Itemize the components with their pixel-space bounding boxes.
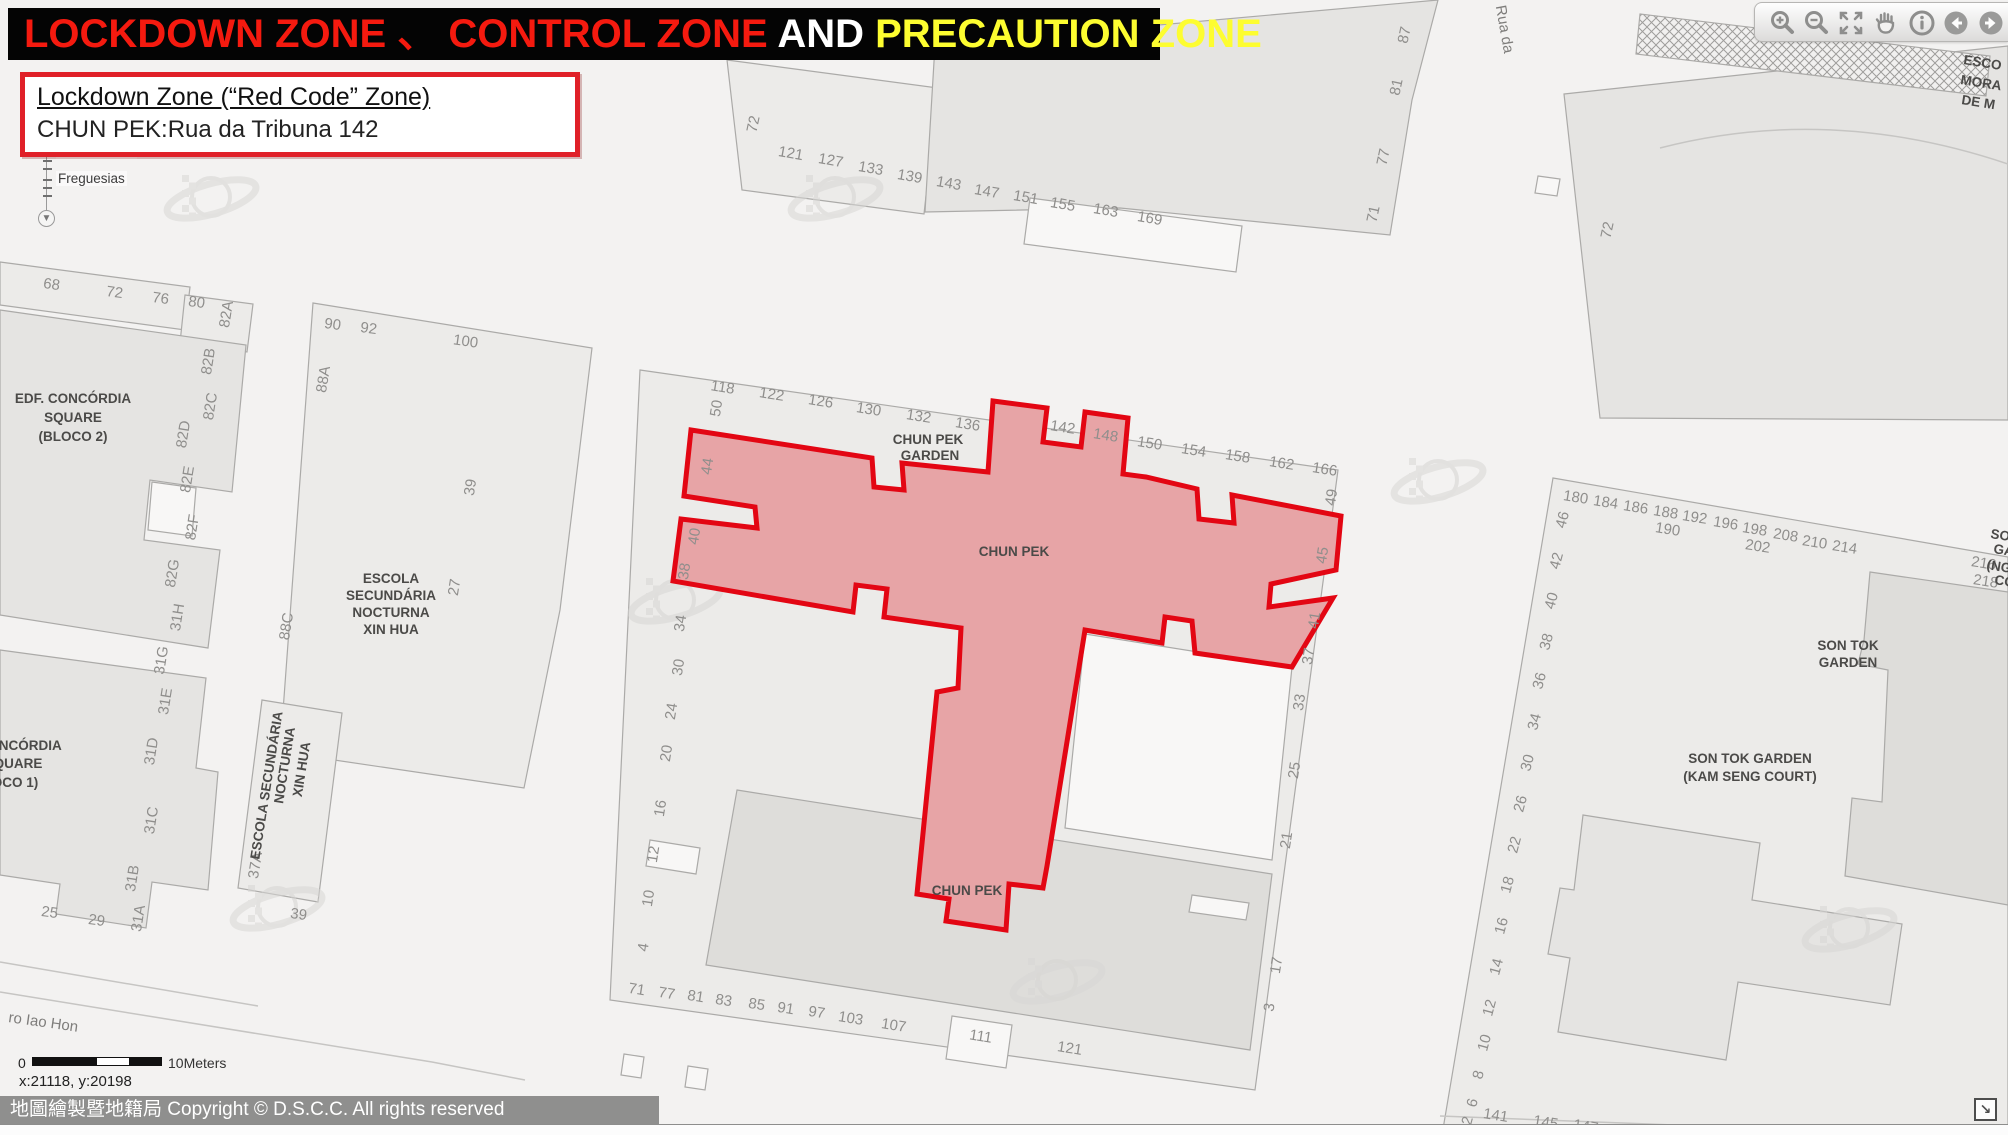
watermark-checker [1827,914,1834,921]
map-label: SON TOK GARDEN [1688,751,1812,766]
scale-bar-graphic [32,1057,162,1066]
map-label: GARDEN [901,448,960,463]
watermark-checker [1416,466,1423,473]
scale-distance-label: 10Meters [168,1055,226,1071]
dscc-watermark-logo [1390,455,1487,509]
watermark-checker [1409,488,1416,495]
previous-extent-icon[interactable] [1941,8,1971,38]
map-label: 72 [1598,220,1618,240]
map-label: 30 [669,658,688,677]
map-label: QUARE [0,756,42,771]
watermark-checker [806,175,813,182]
watermark-checker [646,578,653,585]
watermark-checker [1820,906,1827,913]
watermark-checker [1827,929,1834,936]
map-label: 92 [359,319,378,338]
building-polygon [1065,634,1292,860]
watermark-checker [1416,481,1423,488]
map-label: ro Iao Hon [7,1009,79,1036]
zoom-out-icon[interactable] [1802,8,1832,38]
watermark-checker [1035,981,1042,988]
map-label: CHUN PEK [932,883,1003,898]
watermark-checker [806,190,813,197]
watermark-checker [813,213,820,220]
map-label: 111 [968,1026,993,1046]
map-label: 76 [151,289,170,308]
tree-tick [43,179,52,181]
watermark-checker [1035,966,1042,973]
map-label: 72 [105,283,124,302]
watermark-checker [1028,973,1035,980]
map-label: 49 [1322,488,1341,507]
watermark-checker [182,205,189,212]
dscc-watermark-logo [229,882,326,936]
pan-hand-icon[interactable] [1871,8,1901,38]
map-label: 50 [707,399,726,418]
map-label: 27 [445,578,464,597]
dscc-watermark-logo [163,172,260,226]
map-label: 82F [182,513,203,541]
map-label: 80 [187,293,206,312]
scale-segment [129,1058,161,1065]
map-label: ONCÓRDIA [0,738,62,753]
map-label: 85 [747,995,766,1014]
map-toolbar [1754,2,2008,42]
map-label: 38 [675,562,694,581]
map-label: 100 [452,331,479,351]
tree-tick [43,195,52,197]
building-polygon [621,1054,644,1078]
watermark-checker [813,198,820,205]
street-edge-line [0,992,525,1080]
street-edge-line [0,962,258,1006]
lockdown-info-box: Lockdown Zone (“Red Code” Zone) CHUN PEK… [20,72,580,157]
map-label: SON TOK [1817,638,1879,653]
watermark-checker [1409,473,1416,480]
building-polygon [685,1066,708,1090]
next-extent-icon[interactable] [1976,8,2006,38]
watermark-checker [248,885,255,892]
map-label: 71 [627,980,646,999]
map-label: 90 [323,315,342,334]
map-label: CHUN PEK [893,432,964,447]
watermark-checker [1827,944,1834,951]
map-label: 25 [1285,761,1304,780]
map-label: 41 [1305,611,1324,630]
map-label: CHUN PEK [979,544,1050,559]
watermark-checker [653,586,660,593]
watermark-checker [653,601,660,608]
map-label: 81 [686,987,705,1006]
map-label: 34 [671,614,690,633]
copyright-bar: 地圖繪製暨地籍局 Copyright © D.S.C.C. All rights… [0,1096,659,1124]
watermark-checker [646,593,653,600]
map-label: XIN HUA [363,622,419,637]
full-extent-icon[interactable] [1836,8,1866,38]
map-label: 40 [685,527,704,546]
identify-info-icon[interactable] [1907,8,1937,38]
map-label: 25 [40,903,59,922]
map-label: 83 [714,991,733,1010]
watermark-checker [255,908,262,915]
map-label: 12 [644,845,663,864]
map-label: 44 [698,457,717,476]
tree-tick [43,168,52,170]
layer-item-freguesias[interactable]: Freguesias [56,171,127,186]
watermark-checker [189,183,196,190]
watermark-checker [806,205,813,212]
map-label: 77 [657,984,676,1003]
map-label: (BLOCO 2) [39,429,108,444]
map-label: 45 [1313,546,1332,565]
banner-segment: LOCKDOWN ZONE 、 CONTROL ZONE [24,12,777,56]
resize-corner-button[interactable]: ↘ [1974,1098,1997,1121]
map-label: EDF. CONCÓRDIA [15,391,132,406]
map-label: 91 [776,999,795,1018]
tree-expand-button[interactable]: ▼ [38,210,55,227]
map-viewer: 7212112713313914314715115516316977718187… [0,0,2008,1135]
watermark-checker [248,915,255,922]
watermark-checker [653,616,660,623]
map-label: 37 [1299,647,1318,666]
lockdown-zone-title: Lockdown Zone (“Red Code” Zone) [37,80,563,114]
map-label: 77 [1374,147,1394,167]
map-label: SECUNDÁRIA [346,588,436,603]
map-label: NOCTURNA [352,605,429,620]
map-label: 71 [1364,204,1384,224]
map-label: 33 [1290,693,1309,712]
watermark-checker [189,198,196,205]
watermark-checker [1409,458,1416,465]
map-label: 10 [639,889,658,908]
tree-tick [43,187,52,189]
map-label: 3 [1261,1002,1279,1013]
building-polygon [727,60,938,214]
map-label: 97 [807,1003,826,1022]
watermark-checker [1028,958,1035,965]
zoom-in-icon[interactable] [1768,8,1798,38]
watermark-checker [646,608,653,615]
banner-segment: PRECAUTION ZONE [875,12,1262,56]
map-label: 31G [151,645,172,676]
bottom-strip [0,1124,2008,1135]
scale-segment [33,1058,97,1065]
map-label: GARDEN [1819,655,1878,670]
scale-segment [97,1058,129,1065]
map-label: 68 [42,275,61,294]
headline-banner: LOCKDOWN ZONE 、 CONTROL ZONE AND PRECAUT… [8,8,1160,60]
map-label: (KAM SENG COURT) [1683,769,1817,784]
map-label: OCO 1) [0,775,38,790]
map-label: 17 [1267,956,1286,975]
map-label: 16 [651,799,670,818]
map-label: Rua da [1492,4,1517,55]
map-label: SQUARE [44,410,102,425]
watermark-checker [1028,988,1035,995]
map-label: 72 [744,114,764,134]
map-label: 39 [461,478,480,497]
watermark-checker [189,213,196,220]
watermark-checker [813,183,820,190]
building-polygon [1535,176,1560,196]
watermark-checker [1416,496,1423,503]
tree-tick [43,160,52,162]
watermark-checker [1035,996,1042,1003]
map-label: 21 [1277,831,1296,850]
map-label: 39 [289,905,308,924]
map-label: 24 [662,702,681,721]
coordinate-readout: x:21118, y:20198 [19,1073,132,1090]
tree-line [46,148,47,214]
watermark-checker [1820,936,1827,943]
lockdown-zone-address: CHUN PEK:Rua da Tribuna 142 [37,114,563,146]
map-label: 20 [657,744,676,763]
map-label: 87 [1395,25,1415,45]
watermark-checker [182,175,189,182]
banner-segment: AND [777,12,875,56]
watermark-checker [255,893,262,900]
building-polygon [1564,46,2008,420]
map-label: 29 [87,911,106,930]
map-label: 81 [1387,77,1407,97]
map-label: ESCOLA [363,571,420,586]
watermark-checker [248,900,255,907]
scale-zero-label: 0 [18,1055,26,1071]
map-canvas[interactable]: 7212112713313914314715115516316977718187… [0,0,2008,1135]
watermark-checker [182,190,189,197]
watermark-checker [255,923,262,930]
watermark-checker [1820,921,1827,928]
